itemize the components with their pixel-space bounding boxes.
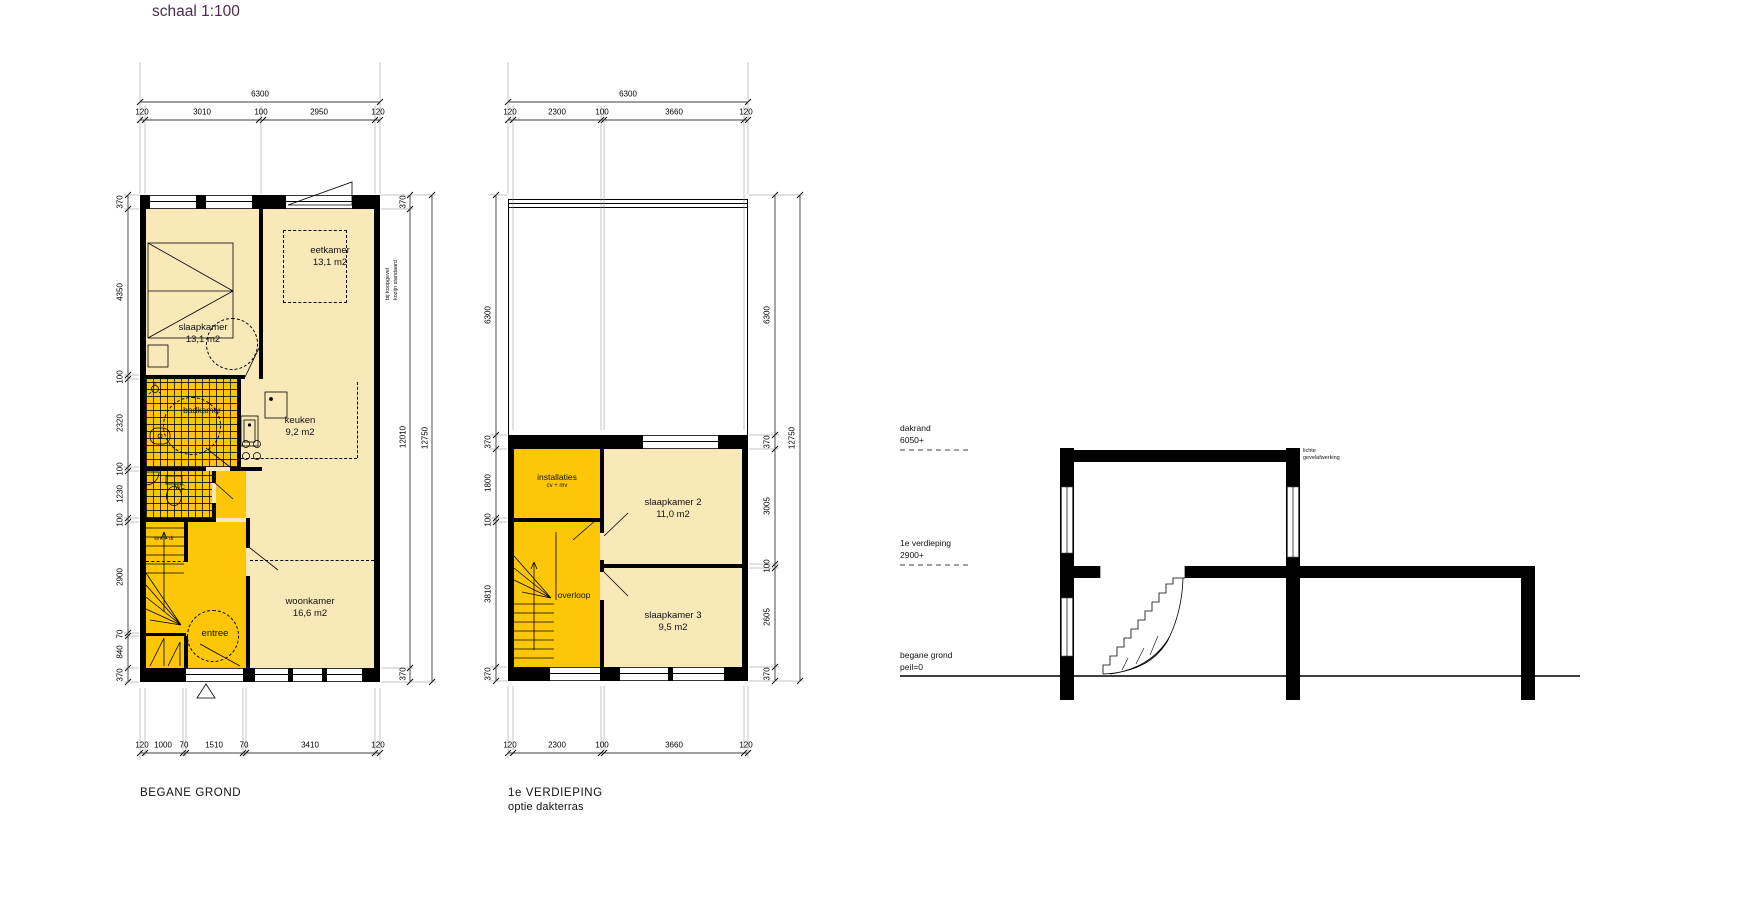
plan2-terrace-side [508,199,509,435]
plan2-terrace-edge [508,207,748,208]
stairwell-opening [1100,566,1185,578]
room-label-eetkamer: eetkamer13,1 m2 [310,245,350,270]
plan2-wall-installaties [514,518,600,522]
room-label-entree: entree [202,628,229,640]
dim-label: 3660 [665,741,683,750]
room-label-keuken: keuken9,2 m2 [285,415,316,440]
sheet-scale-title: schaal 1:100 [152,3,240,21]
plan2-title: 1e VERDIEPING [508,787,603,799]
plan2-wall-left [508,449,514,667]
dim-label: 4350 [116,283,125,301]
dim-label: 100 [116,462,125,475]
plan1-woonkamer-open-boundary [250,560,374,561]
dim-label: 2300 [548,741,566,750]
dim-label: 120 [503,741,516,750]
dim-label: 370 [763,667,772,680]
plan2-wall-center-c [600,600,604,667]
dim-label: 2900 [116,568,125,586]
dim-label: 3660 [665,108,683,117]
room-label-installaties: installatiescv + mv [537,472,577,491]
room-label-overloop: overloop [558,590,591,601]
drawing-sheet: schaal 1:100 [0,0,1748,922]
dim-label: 70 [240,741,249,750]
room-label-woonkamer: woonkamer16,6 m2 [285,596,334,621]
plan1-window-woonkamer [255,668,362,682]
plan1-wall-counter-bottom [230,467,262,471]
dim-label: 2605 [763,608,772,626]
section-drawing [900,448,1580,700]
plan1-wall-woonkamer-b [246,576,250,668]
section-facade-note: lichtegevelafwerking [1303,448,1340,461]
dim-label: 3410 [301,741,319,750]
dim-label: 120 [371,741,384,750]
plan1-wall-right [374,209,380,668]
plan2-wall-slaapkamers [604,564,742,568]
plan1-wall-wc-right-a [212,471,216,483]
dim-label: 370 [116,195,125,208]
section-windows [1062,487,1299,656]
room-label-slaapkamer: slaapkamer13,1 m2 [178,322,227,347]
dim-label: 12750 [788,427,797,449]
dim-label: 120 [739,741,752,750]
dim-label: 100 [595,108,608,117]
room-label-badkamer: badkamer [183,405,221,416]
dim-label: 3810 [484,585,493,603]
section-structure [1060,448,1535,700]
dim-label: 6300 [484,306,493,324]
section-stair-hatch [1122,636,1158,670]
dim-label: 120 [135,108,148,117]
dim-label: 12010 [399,426,408,448]
plan1-wall-wc-right-b [212,503,216,518]
dim-label: 2950 [310,108,328,117]
dim-label: 370 [484,435,493,448]
dim-label: 100 [116,513,125,526]
dim-label: 120 [135,741,148,750]
plan2-subtitle: optie dakterras [508,801,584,813]
dim-label: 120 [503,108,516,117]
dim-label: 2320 [116,414,125,432]
dim-label: 370 [484,667,493,680]
plan1-wall-woonkamer-a [246,518,250,548]
plan1-wall-left [140,209,146,668]
facade-note: bij koopgevel [385,268,391,300]
room-label-slaapkamer3: slaapkamer 39,5 m2 [644,610,701,635]
facade-note: kozijn standaard [393,260,399,300]
level-label-dakrand: dakrand6050+ [900,422,931,447]
dim-label: 370 [116,668,125,681]
plan1-front-door-opening [186,668,243,682]
plan1-window-mullion [196,195,206,209]
plan1-title: BEGANE GROND [140,787,241,799]
dim-label: 12750 [421,427,430,449]
dim-label: 370 [399,667,408,680]
dim-label: 120 [739,108,752,117]
plan1-window-eetkamer [286,195,352,209]
room-label-slaapkamer2: slaapkamer 211,0 m2 [644,497,701,522]
dim-label: 1000 [154,741,172,750]
dim-label: 6300 [763,306,772,324]
plan1-wall-slaap-eet [259,209,263,379]
section-stair-steps [1103,578,1185,674]
dim-label: 70 [180,741,189,750]
plan1-wall-slaap-bottom [146,375,245,379]
dim-label: 120 [371,108,384,117]
plan1-keuken-dashed-boundary [241,458,357,459]
dim-label: 3005 [763,497,772,515]
dim-label: 100 [484,513,493,526]
section-stair-stringer [1103,578,1183,674]
dim-label: 100 [254,108,267,117]
dim-label: 3010 [193,108,211,117]
plan2-wall-right [742,449,748,667]
dim-label: 1800 [484,474,493,492]
dim-label: 100 [595,741,608,750]
plan1-wc-tiles [146,471,212,518]
room-label-wc: WC [175,485,185,493]
plan1-window-mullion [322,668,327,682]
dim-label: 1510 [205,741,223,750]
level-label-begane-grond: begane grondpeil=0 [900,649,952,674]
plan1-keuken-dashed-boundary [357,382,358,458]
dim-label: 2300 [548,108,566,117]
plan2-terrace-side [747,199,748,435]
plan2-window-slaapkamer2 [643,435,718,449]
plan2-window-mullion [668,667,673,681]
plan1-wall-badkamer-right [237,379,241,467]
dim-label: 6300 [619,90,637,99]
level-label-verdieping: 1e verdieping2900+ [900,537,951,562]
plan1-window-mullion [288,668,293,682]
plan2-terrace-edge [508,199,748,200]
dim-label: 100 [763,559,772,572]
plan1-wall-badkamer-bottom [146,467,206,471]
dim-label: 70 [116,630,125,639]
dim-label: 840 [116,645,125,658]
room-label-wasruimte: wm + dr [154,536,174,543]
dim-label: 1230 [116,485,125,503]
plan1-wall-meterkast-top [146,633,186,636]
dim-label: 6300 [251,90,269,99]
dim-label: 370 [399,195,408,208]
entrance-marker-triangle [197,684,215,698]
plan2-wall-center-a [600,449,604,533]
dim-label: 370 [763,435,772,448]
plan1-corridor [216,471,246,518]
dim-label: 100 [116,370,125,383]
plan2-window-overloop [550,667,600,681]
plan2-terrace-edge [508,203,748,204]
